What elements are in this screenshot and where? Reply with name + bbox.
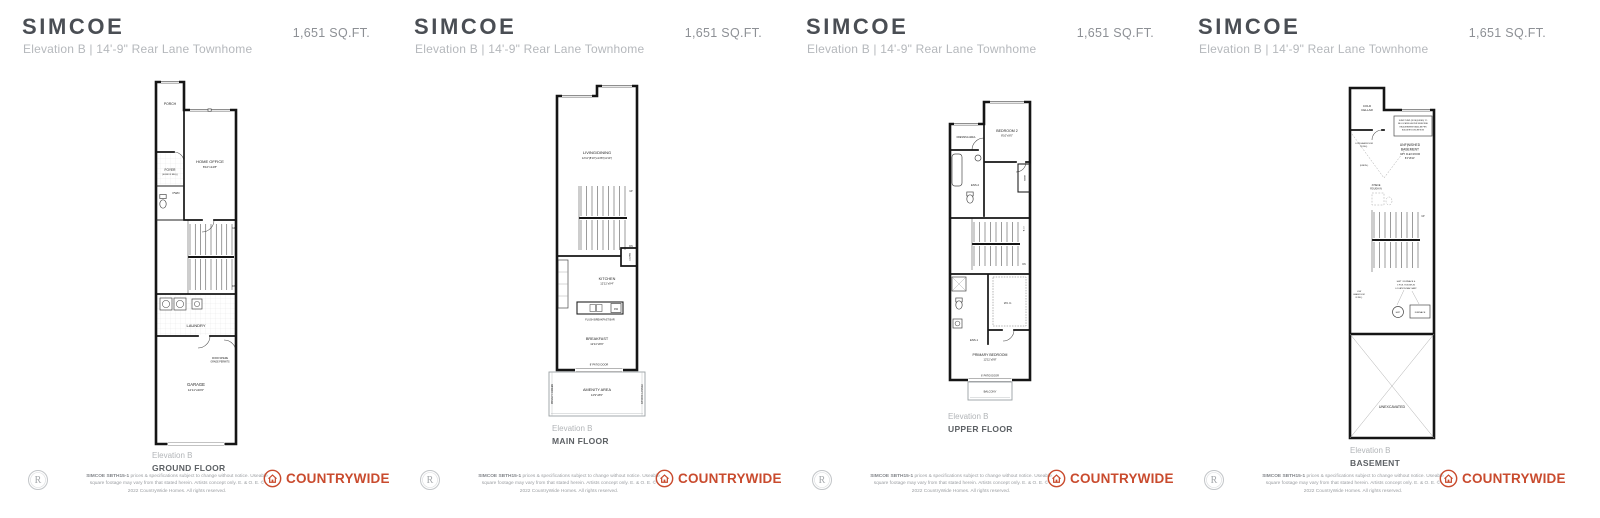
disclaimer-model: SIMCOE SBTH15-1 <box>478 474 521 479</box>
label-ens1: ENS.1 <box>970 338 979 342</box>
label-garage-dims: 12'11"x20'0" <box>188 388 204 392</box>
plan-title: SIMCOE <box>22 14 124 40</box>
floor-caption: Elevation B UPPER FLOOR <box>948 411 1013 435</box>
label-unfin: (UNFIN.) <box>1360 165 1369 167</box>
label-kitchen: KITCHEN <box>599 277 616 281</box>
label-ub1: UNFINISHED <box>1400 143 1421 147</box>
label-home-office-dims: 8'10"x14'8" <box>203 165 217 169</box>
windows <box>1402 108 1430 111</box>
label-amenity: AMENITY AREA <box>583 388 611 392</box>
disclaimer: SIMCOE SBTH15-1 prices & specifications … <box>84 473 270 495</box>
plan-title: SIMCOE <box>1198 14 1300 40</box>
panel-ground-floor: SIMCOE Elevation B | 14'-9" Rear Lane To… <box>0 0 392 518</box>
countrywide-house-icon <box>655 469 674 488</box>
caption-elevation: Elevation B <box>152 450 225 462</box>
disclaimer: SIMCOE SBTH15-1 prices & specifications … <box>476 473 662 495</box>
countrywide-logo: COUNTRYWIDE <box>1047 469 1174 488</box>
label-privacy-left: PRIVACY SCREEN <box>551 384 554 404</box>
label-foyer: FOYER <box>165 168 177 172</box>
label-dn: DN <box>1022 264 1026 266</box>
countrywide-wordmark: COUNTRYWIDE <box>1070 471 1174 486</box>
label-linen: LINEN <box>1023 175 1025 182</box>
label-otb: O.T.B. <box>1022 226 1024 232</box>
floor-caption: Elevation B BASEMENT <box>1350 445 1400 469</box>
label-lowb3: IF REQ. <box>1356 297 1363 299</box>
label-balcony: BALCONY <box>984 390 997 394</box>
ground-floor-drawing: PORCH FOYER (SUNK IF REQ.) PWD HOME OFFI… <box>150 78 242 448</box>
countrywide-logo: COUNTRYWIDE <box>263 469 390 488</box>
label-privacy-right: PRIVACY SCREEN <box>640 384 643 404</box>
label-dressing: DRESSING AREA <box>957 136 976 139</box>
label-breakfast-bar: FLUSH BREAKFAST BAR <box>585 319 615 322</box>
label-breakfast-dims: 12'11"x8'0" <box>590 342 604 346</box>
fixtures <box>160 195 202 311</box>
label-cold2: CELLAR <box>1361 108 1374 112</box>
label-low2: IF REQ. <box>1360 146 1368 148</box>
caption-floor-name: UPPER FLOOR <box>948 423 1013 435</box>
stairs <box>579 186 627 250</box>
countrywide-house-icon <box>1439 469 1458 488</box>
label-home-office: HOME OFFICE <box>196 159 224 164</box>
upper-floor-drawing: DRESSING AREA BEDROOM 2 8'10"x9'0" ENS.2… <box>944 98 1036 408</box>
unexcavated-cross <box>1350 334 1434 438</box>
panel-main-floor: SIMCOE Elevation B | 14'-9" Rear Lane To… <box>392 0 784 518</box>
label-patio-door: 6' PATIO DOOR <box>981 374 999 377</box>
label-door-note2: GRADE PERMITS <box>210 361 229 364</box>
label-dn: DN <box>232 285 236 288</box>
countrywide-wordmark: COUNTRYWIDE <box>286 471 390 486</box>
registered-badge: R <box>1204 470 1224 490</box>
registered-badge: R <box>420 470 440 490</box>
label-ens2: ENS.2 <box>971 183 980 187</box>
floor-caption: Elevation B GROUND FLOOR <box>152 450 225 474</box>
label-up: UP <box>1421 216 1425 218</box>
stairs <box>188 220 234 294</box>
disclaimer-model: SIMCOE SBTH15-1 <box>1262 474 1305 479</box>
floorplan-sheet: SIMCOE Elevation B | 14'-9" Rear Lane To… <box>0 0 1600 518</box>
registered-letter: R <box>35 475 42 486</box>
stairs <box>972 218 1020 270</box>
label-amenity-dims: 14'9"x8'0" <box>591 393 603 397</box>
label-ub2: BASEMENT <box>1401 148 1419 152</box>
plan-subtitle: Elevation B | 14'-9" Rear Lane Townhome <box>415 42 644 56</box>
walls <box>1350 88 1434 438</box>
label-dn: DN <box>629 245 633 248</box>
label-sump4: BUILDER'S DISCRETION <box>1402 130 1425 132</box>
plan-sqft: 1,651 SQ.FT. <box>1469 26 1546 40</box>
registered-letter: R <box>819 475 826 486</box>
patio-door <box>968 378 1012 382</box>
plan-sqft: 1,651 SQ.FT. <box>1077 26 1154 40</box>
plan-sqft: 1,651 SQ.FT. <box>293 26 370 40</box>
label-living-dims: 12'11"(8'10")x14'8"(11'10") <box>582 156 612 160</box>
label-bedroom2: BEDROOM 2 <box>996 129 1018 133</box>
windows <box>954 100 1024 125</box>
label-note3: LOCATION MAY VARY <box>1395 287 1417 290</box>
plan-title: SIMCOE <box>414 14 516 40</box>
registered-badge: R <box>812 470 832 490</box>
stairs <box>1372 210 1420 272</box>
plan-subtitle: Elevation B | 14'-9" Rear Lane Townhome <box>23 42 252 56</box>
label-pwd: PWD <box>173 191 181 195</box>
disclaimer-model: SIMCOE SBTH15-1 <box>86 474 129 479</box>
label-wic: W.I.C. <box>1004 301 1012 305</box>
label-up: UP <box>629 190 633 193</box>
label-laundry: LAUNDRY <box>186 323 205 328</box>
patio-door <box>575 368 623 372</box>
panel-basement: SIMCOE Elevation B | 14'-9" Rear Lane To… <box>1176 0 1568 518</box>
label-sump2: BE LOCATED AS PER MUNICIPAL <box>1398 122 1428 125</box>
countrywide-house-icon <box>263 469 282 488</box>
caption-floor-name: BASEMENT <box>1350 457 1400 469</box>
label-porch: PORCH <box>164 102 177 106</box>
label-living: LIVING/DINING <box>583 150 611 155</box>
label-rough2: ROUGH IN <box>1370 188 1382 190</box>
countrywide-logo: COUNTRYWIDE <box>1439 469 1566 488</box>
label-low1: LOW HEADROOM <box>1355 142 1373 145</box>
garage-door <box>168 442 225 446</box>
countrywide-logo: COUNTRYWIDE <box>655 469 782 488</box>
countrywide-wordmark: COUNTRYWIDE <box>1462 471 1566 486</box>
windows <box>161 80 230 111</box>
registered-badge: R <box>28 470 48 490</box>
label-primary-dims: 12'11"x9'8" <box>983 358 996 362</box>
label-sump1: SUMP PUMP (IF REQUIRED) TO <box>1399 120 1428 122</box>
disclaimer: SIMCOE SBTH15-1 prices & specifications … <box>1260 473 1446 495</box>
door-swings <box>1372 130 1382 140</box>
label-garage: GARAGE <box>187 382 205 387</box>
kitchen-fixtures <box>558 260 623 314</box>
label-hwt: HWT <box>1396 312 1401 314</box>
registered-letter: R <box>1211 475 1218 486</box>
label-lowb1: LOW <box>1357 291 1362 293</box>
plan-subtitle: Elevation B | 14'-9" Rear Lane Townhome <box>807 42 1036 56</box>
caption-floor-name: MAIN FLOOR <box>552 435 609 447</box>
disclaimer: SIMCOE SBTH15-1 prices & specifications … <box>868 473 1054 495</box>
label-ub3: OPT. FLEX ROOM <box>1400 153 1420 156</box>
label-foyer-note: (SUNK IF REQ.) <box>162 174 178 176</box>
label-up: UP <box>232 227 236 230</box>
basement-drawing: COLD CELLAR SUMP PUMP (IF REQUIRED) TO B… <box>1346 86 1438 444</box>
label-note2: 3 PCE. ROUGH-IN <box>1397 284 1415 286</box>
label-pantry: PANTRY <box>628 253 631 262</box>
countrywide-wordmark: COUNTRYWIDE <box>678 471 782 486</box>
label-kitchen-dims: 12'11"x9'4" <box>600 282 614 286</box>
label-lowb2: HEADROOM <box>1353 293 1365 296</box>
label-unexcavated: UNEXCAVATED <box>1379 405 1406 409</box>
floor-caption: Elevation B MAIN FLOOR <box>552 423 609 447</box>
label-note1: HWT / FURNACE & <box>1397 280 1416 283</box>
countrywide-house-icon <box>1047 469 1066 488</box>
plan-subtitle: Elevation B | 14'-9" Rear Lane Townhome <box>1199 42 1428 56</box>
label-sump3: REQUIREMENTS AND AS PER <box>1400 125 1428 128</box>
caption-elevation: Elevation B <box>1350 445 1400 457</box>
label-rough1: 3 PIECE <box>1372 185 1381 187</box>
plan-title: SIMCOE <box>806 14 908 40</box>
panel-upper-floor: SIMCOE Elevation B | 14'-9" Rear Lane To… <box>784 0 1176 518</box>
label-patio-door: 8' PATIO DOOR <box>590 363 609 367</box>
label-bedroom2-dims: 8'10"x9'0" <box>1001 134 1013 138</box>
caption-elevation: Elevation B <box>948 411 1013 423</box>
label-door-note1: DOOR WHERE <box>212 358 229 360</box>
label-primary: PRIMARY BEDROOM <box>973 353 1008 357</box>
caption-elevation: Elevation B <box>552 423 609 435</box>
label-breakfast: BREAKFAST <box>586 337 609 341</box>
disclaimer-model: SIMCOE SBTH15-1 <box>870 474 913 479</box>
registered-letter: R <box>427 475 434 486</box>
main-floor-drawing: LIVING/DINING 12'11"(8'10")x14'8"(11'10"… <box>547 82 647 422</box>
label-ub-dims: 8'4"x8'11" <box>1405 157 1415 160</box>
bath-fixtures <box>952 154 1026 328</box>
label-furnace: FURNACE <box>1415 311 1426 314</box>
plan-sqft: 1,651 SQ.FT. <box>685 26 762 40</box>
